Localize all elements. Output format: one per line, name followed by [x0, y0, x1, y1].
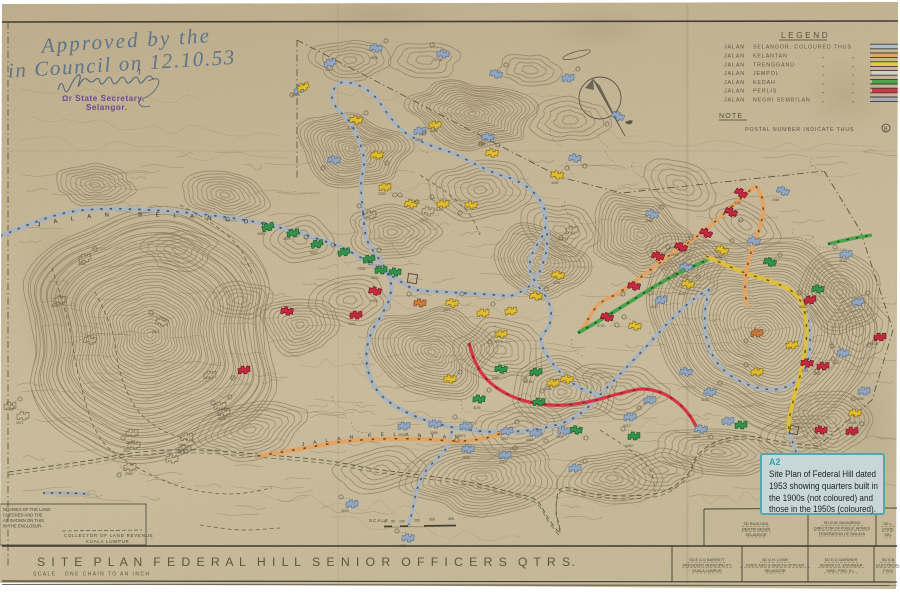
svg-text:4045: 4045 — [325, 68, 333, 72]
svg-text:SD E.G GARDNER: SD E.G GARDNER — [825, 558, 858, 562]
svg-text:JALAN: JALAN — [724, 89, 745, 95]
svg-text:the 1900s (not coloured) and: the 1900s (not coloured) and — [769, 493, 873, 503]
svg-text:„: „ — [822, 62, 824, 68]
svg-text:3536: 3536 — [556, 435, 564, 439]
svg-text:KUALA LUMPUR.: KUALA LUMPUR. — [86, 539, 132, 544]
svg-text:2671: 2671 — [443, 308, 451, 312]
svg-text:4156: 4156 — [347, 126, 355, 130]
svg-text:JALAN: JALAN — [724, 98, 745, 104]
svg-text:2787: 2787 — [561, 237, 569, 241]
svg-text:KEDAH: KEDAH — [753, 80, 776, 86]
svg-text:4002: 4002 — [398, 433, 406, 437]
svg-text:F.W.D: F.W.D — [883, 569, 893, 573]
svg-text:2352: 2352 — [125, 472, 133, 476]
svg-text:PERLIS: PERLIS — [753, 89, 777, 95]
svg-text:3242: 3242 — [551, 181, 559, 185]
svg-text:4303: 4303 — [370, 299, 378, 303]
svg-text:S I T E P L A N F E D E R A: S I T E P L A N F E D E R A L H I L L S … — [37, 555, 580, 569]
svg-text:LEGEND: LEGEND — [781, 31, 830, 40]
svg-text:STATE: STATE — [882, 527, 894, 531]
svg-text:B: B — [884, 127, 888, 133]
svg-text:COLLECTOR OF LAND REVENUE: COLLECTOR OF LAND REVENUE — [64, 533, 153, 538]
svg-text:JALAN: JALAN — [724, 71, 745, 77]
svg-text:4395: 4395 — [856, 397, 864, 401]
svg-text:400: 400 — [448, 517, 454, 521]
svg-text:SCALE ONE CHAIN TO AN INCH: SCALE ONE CHAIN TO AN INCH — [33, 572, 150, 578]
svg-text:4291: 4291 — [801, 369, 809, 373]
svg-text:2416: 2416 — [499, 460, 507, 464]
svg-text:2794: 2794 — [434, 58, 442, 62]
svg-text:3219: 3219 — [623, 424, 631, 428]
svg-text:2320: 2320 — [378, 192, 386, 196]
svg-text:SENIOR EX. ENGINEER: SENIOR EX. ENGINEER — [820, 563, 863, 567]
svg-text:2464: 2464 — [772, 198, 780, 202]
svg-text:SCALE: SCALE — [369, 518, 389, 523]
svg-text:SELANGOR: SELANGOR — [764, 569, 785, 573]
svg-text:4378: 4378 — [849, 421, 857, 425]
svg-text:4286: 4286 — [430, 129, 438, 133]
svg-text:3989: 3989 — [257, 232, 265, 236]
svg-text:3720: 3720 — [597, 324, 605, 328]
svg-text:JEMPOL: JEMPOL — [753, 71, 780, 77]
svg-text:„: „ — [852, 62, 854, 68]
svg-text:4125: 4125 — [701, 398, 709, 402]
svg-text:2474: 2474 — [420, 218, 428, 222]
svg-text:4229: 4229 — [283, 237, 291, 241]
svg-text:3228: 3228 — [218, 417, 226, 421]
svg-text:NOTE: NOTE — [719, 113, 743, 120]
svg-text:JALAN: JALAN — [724, 45, 745, 51]
svg-text:4404: 4404 — [78, 262, 86, 266]
svg-text:100: 100 — [399, 520, 405, 524]
svg-text:NEGRI SEMBILAN: NEGRI SEMBILAN — [753, 98, 811, 104]
svg-text:3497: 3497 — [734, 201, 742, 205]
svg-text:NDARIES OF THE LAND: NDARIES OF THE LAND — [3, 507, 50, 512]
svg-text:4249: 4249 — [693, 435, 701, 439]
svg-text:3071: 3071 — [16, 421, 24, 425]
svg-text:2837: 2837 — [123, 449, 131, 453]
svg-text:200: 200 — [414, 519, 420, 523]
svg-text:CHECKED AND THE: CHECKED AND THE — [3, 513, 43, 518]
svg-text:MWD. FWD. K.L.: MWD. FWD. K.L. — [826, 569, 855, 573]
svg-text:„: „ — [822, 54, 824, 60]
svg-text:SEL: SEL — [884, 533, 891, 537]
svg-text:3086: 3086 — [645, 219, 653, 223]
svg-text:SD E.B: SD E.B — [882, 558, 895, 562]
svg-text:2695: 2695 — [51, 304, 59, 308]
svg-text:4124: 4124 — [832, 361, 840, 365]
svg-text:SELANGOR, COLOURED THUS: SELANGOR, COLOURED THUS — [753, 45, 852, 51]
svg-text:4201: 4201 — [553, 281, 561, 285]
svg-text:FEDERATION OF MALAYA: FEDERATION OF MALAYA — [819, 532, 866, 536]
svg-text:3200: 3200 — [371, 276, 379, 280]
svg-text:KELANTAN: KELANTAN — [753, 54, 788, 60]
svg-text:3138: 3138 — [525, 380, 533, 384]
svg-text:1953 showing quarters built in: 1953 showing quarters built in — [769, 481, 878, 491]
svg-text:SD G.H. LOWE: SD G.H. LOWE — [762, 558, 789, 562]
svg-text:PRESIDENT MUNICIPALITY: PRESIDENT MUNICIPALITY — [682, 563, 731, 567]
svg-text:2544: 2544 — [358, 267, 366, 271]
svg-text:TRENGGANU: TRENGGANU — [753, 62, 795, 68]
svg-text:2928: 2928 — [870, 342, 878, 346]
svg-text:4485: 4485 — [715, 255, 723, 259]
svg-text:those in the 1950s (coloured).: those in the 1950s (coloured). — [769, 504, 876, 514]
svg-text:2808: 2808 — [462, 456, 470, 460]
svg-text:JALAN: JALAN — [724, 62, 745, 68]
svg-text:„: „ — [822, 98, 824, 104]
svg-text:2467: 2467 — [492, 376, 500, 380]
svg-text:SD D.W. McDIARMID: SD D.W. McDIARMID — [824, 521, 861, 525]
svg-text:„: „ — [852, 98, 854, 104]
svg-text:2442: 2442 — [678, 292, 686, 296]
svg-text:A2: A2 — [769, 457, 781, 467]
svg-text:4126: 4126 — [839, 259, 847, 263]
svg-text:300: 300 — [429, 518, 435, 522]
svg-text:„: „ — [852, 54, 854, 60]
svg-text:0: 0 — [384, 520, 386, 524]
svg-text:KUALA LUMPUR: KUALA LUMPUR — [692, 569, 722, 573]
svg-text:3997: 3997 — [501, 437, 509, 441]
svg-text:„: „ — [822, 89, 824, 95]
svg-text:„: „ — [852, 80, 854, 86]
svg-text:DIRECTOR OF PUBLIC WORKS: DIRECTOR OF PUBLIC WORKS — [814, 526, 871, 530]
svg-text:„: „ — [852, 71, 854, 77]
svg-text:4408: 4408 — [544, 387, 552, 391]
svg-text:3443: 3443 — [348, 322, 356, 326]
svg-text:3061: 3061 — [526, 438, 534, 442]
svg-text:3609: 3609 — [341, 509, 349, 513]
svg-text:2615: 2615 — [671, 253, 679, 257]
svg-text:SD RAJA UDA: SD RAJA UDA — [744, 522, 769, 526]
svg-text:SD L.: SD L. — [883, 522, 893, 526]
svg-text:3996: 3996 — [430, 431, 438, 435]
svg-text:3621: 3621 — [152, 330, 160, 334]
svg-text:4535: 4535 — [370, 56, 378, 60]
svg-text:Selangor.: Selangor. — [86, 103, 127, 112]
svg-text:4428: 4428 — [799, 305, 807, 309]
svg-text:4153: 4153 — [435, 208, 443, 212]
svg-text:4243: 4243 — [650, 305, 658, 309]
svg-text:3029: 3029 — [310, 251, 318, 255]
svg-text:MENTRI BESAR: MENTRI BESAR — [742, 527, 771, 531]
svg-text:„: „ — [822, 80, 824, 86]
svg-text:Site Plan of Federal Hill date: Site Plan of Federal Hill dated — [769, 469, 876, 479]
svg-text:„: „ — [852, 89, 854, 95]
svg-text:JALAN: JALAN — [724, 80, 745, 86]
svg-text:3673: 3673 — [458, 434, 466, 438]
svg-text:SELANGOR: SELANGOR — [745, 533, 766, 537]
svg-text:4457: 4457 — [626, 444, 634, 448]
svg-text:STATE MED & HEALTH OFFICER: STATE MED & HEALTH OFFICER — [746, 563, 804, 567]
svg-text:AS SHOWN ON THIS: AS SHOWN ON THIS — [3, 518, 44, 523]
svg-text:IN THE ENCLOSUR-: IN THE ENCLOSUR- — [3, 524, 43, 529]
svg-text:2493: 2493 — [812, 436, 820, 440]
svg-text:3003: 3003 — [813, 372, 821, 376]
svg-text:SD E.G.G BARRETT: SD E.G.G BARRETT — [689, 558, 725, 562]
svg-text:2819: 2819 — [415, 138, 423, 142]
svg-text:„: „ — [822, 71, 824, 77]
svg-text:4474: 4474 — [495, 340, 503, 344]
svg-text:4378: 4378 — [681, 275, 689, 279]
svg-text:3159: 3159 — [473, 406, 481, 410]
svg-text:50: 50 — [391, 520, 395, 524]
svg-text:JALAN: JALAN — [724, 54, 745, 60]
svg-text:ELECTRICAL: ELECTRICAL — [876, 563, 899, 567]
svg-text:2326: 2326 — [292, 93, 300, 97]
svg-text:POSTAL NUMBER INDICATE THUS: POSTAL NUMBER INDICATE THUS — [745, 127, 854, 133]
